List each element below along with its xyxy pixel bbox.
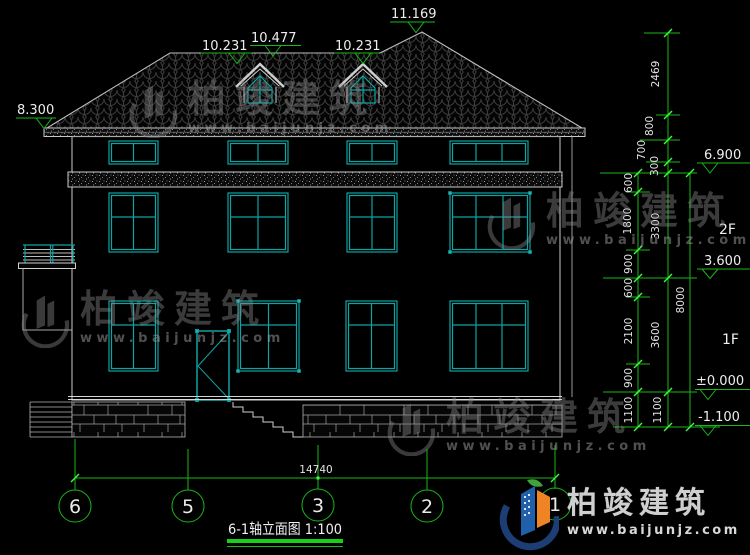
marker-8300: 8.300 <box>16 103 56 129</box>
dim-900a: 900 <box>623 254 635 274</box>
title-underline-thick <box>227 539 343 543</box>
elev-10231b-text: 10.231 <box>335 39 381 54</box>
floor-label-1f: 1F <box>722 332 739 348</box>
footer-logo: 柏竣建筑 www.baijunjz.com <box>497 474 740 552</box>
cad-elevation-screenshot: 14740 6 5 3 2 1 2469 800 700 300 600 1 <box>0 0 750 555</box>
footer-logo-icon <box>497 474 559 552</box>
balcony-slab <box>19 263 76 269</box>
elev-10231a-text: 10.231 <box>202 39 248 54</box>
balcony-rails <box>23 250 75 261</box>
footer-brand-text: 柏竣建筑 <box>567 489 740 519</box>
elev-6900-text: 6.900 <box>704 148 741 163</box>
dim-1100b: 1100 <box>652 397 664 424</box>
grid-label-3: 3 <box>312 495 324 517</box>
elev-0000-text: ±0.000 <box>696 374 744 389</box>
grid-label-6: 6 <box>69 496 81 518</box>
marker-6900: 6.900 <box>697 148 750 173</box>
total-width-dim: 14740 <box>299 464 332 476</box>
balcony-support-wall <box>23 269 72 331</box>
facade <box>68 137 572 401</box>
floor-label-2f: 2F <box>719 222 736 238</box>
dim-300: 300 <box>649 156 661 176</box>
drawing-title: 6-1轴立面图 1:100 <box>227 521 343 547</box>
marker-3600: 3.600 <box>697 254 750 279</box>
elev-10477-text: 10.477 <box>251 31 297 46</box>
roof-outline <box>47 32 582 128</box>
base <box>30 397 562 438</box>
elev-11169-text: 11.169 <box>391 7 437 22</box>
marker-11169: 11.169 <box>390 7 437 33</box>
dim-3300: 3300 <box>650 213 662 240</box>
stone-plinth-right <box>303 405 562 437</box>
dim-2100: 2100 <box>623 318 635 345</box>
marker-10477: 10.477 <box>250 31 301 56</box>
dim-2469: 2469 <box>650 61 662 88</box>
elev-neg1100-text: -1.100 <box>698 410 740 425</box>
dim-800: 800 <box>644 116 656 136</box>
dim-1800: 1800 <box>622 208 634 235</box>
elevation-drawing: 14740 6 5 3 2 1 2469 800 700 300 600 1 <box>0 0 750 555</box>
grid-axes: 14740 6 5 3 2 1 <box>59 439 571 522</box>
dim-700: 700 <box>636 140 648 160</box>
elev-8300-text: 8.300 <box>17 103 54 118</box>
dim-900b: 900 <box>623 368 635 388</box>
elev-3600-text: 3.600 <box>704 254 741 269</box>
marker-0000: ±0.000 <box>695 374 750 400</box>
dim-8000: 8000 <box>675 287 687 314</box>
floor-slab-band <box>68 172 562 187</box>
title-text: 6-1轴立面图 1:100 <box>228 521 342 538</box>
stone-plinth-left <box>72 402 185 437</box>
grid-label-2: 2 <box>421 496 433 518</box>
side-balcony <box>19 245 76 330</box>
footer-site-text: www.baijunjz.com <box>567 523 740 538</box>
dim-600a: 600 <box>623 173 635 193</box>
dim-ticks <box>634 29 694 431</box>
dim-600b: 600 <box>623 278 635 298</box>
height-dimensions: 2469 800 700 300 600 1800 900 600 2100 9… <box>600 29 720 431</box>
left-steps <box>30 402 72 437</box>
roof <box>44 32 585 137</box>
dim-1100a: 1100 <box>623 397 635 424</box>
front-steps <box>233 402 303 437</box>
dim-3600: 3600 <box>650 322 662 349</box>
grid-label-5: 5 <box>182 496 194 518</box>
marker-neg1100: -1.100 <box>695 410 750 436</box>
